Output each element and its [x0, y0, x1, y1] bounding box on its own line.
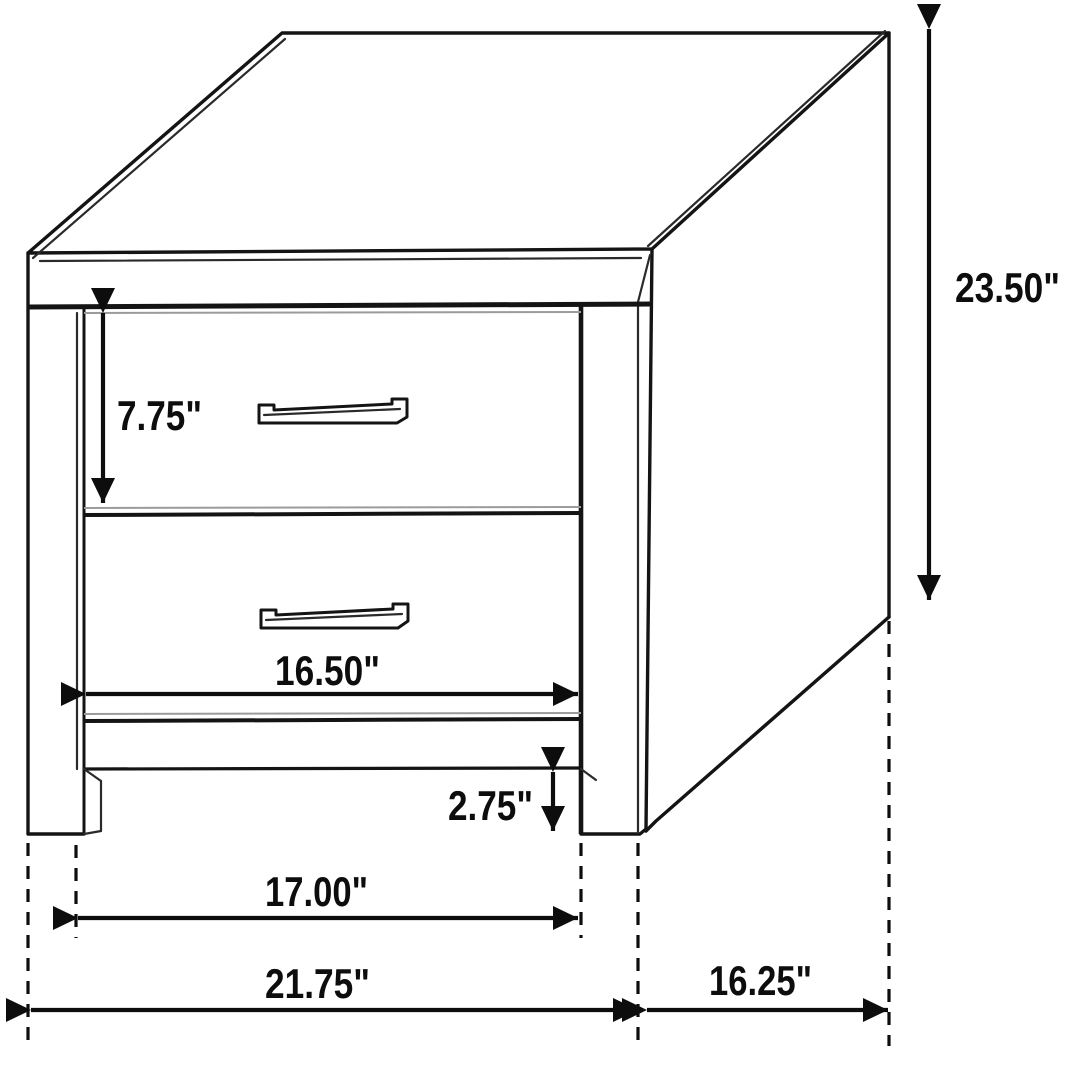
- dim-label-leg-height: 2.75": [448, 782, 533, 829]
- dim-label-depth: 16.25": [709, 957, 812, 1004]
- front-face: [28, 249, 652, 834]
- dim-label-inner-leg-span: 17.00": [265, 868, 368, 915]
- dimension-labels: 7.75" 23.50" 16.50" 2.75" 17.00" 21.75" …: [117, 264, 1060, 1007]
- top-face: [28, 31, 889, 261]
- left-leg: [84, 769, 101, 834]
- dim-label-drawer-opening-width: 16.50": [275, 647, 380, 694]
- dimension-arrows: [31, 29, 929, 1010]
- bottom-rail: [84, 713, 581, 769]
- dim-label-overall-width: 21.75": [265, 960, 370, 1007]
- dim-label-overall-height: 23.50": [955, 264, 1060, 311]
- drawer-1-handle: [259, 399, 407, 423]
- nightstand-drawing: 7.75" 23.50" 16.50" 2.75" 17.00" 21.75" …: [0, 0, 1080, 1080]
- drawer-2-handle: [261, 604, 408, 628]
- dim-label-top-drawer-height: 7.75": [117, 392, 202, 439]
- side-panel: [646, 33, 889, 831]
- furniture-dimension-diagram: 7.75" 23.50" 16.50" 2.75" 17.00" 21.75" …: [0, 0, 1080, 1080]
